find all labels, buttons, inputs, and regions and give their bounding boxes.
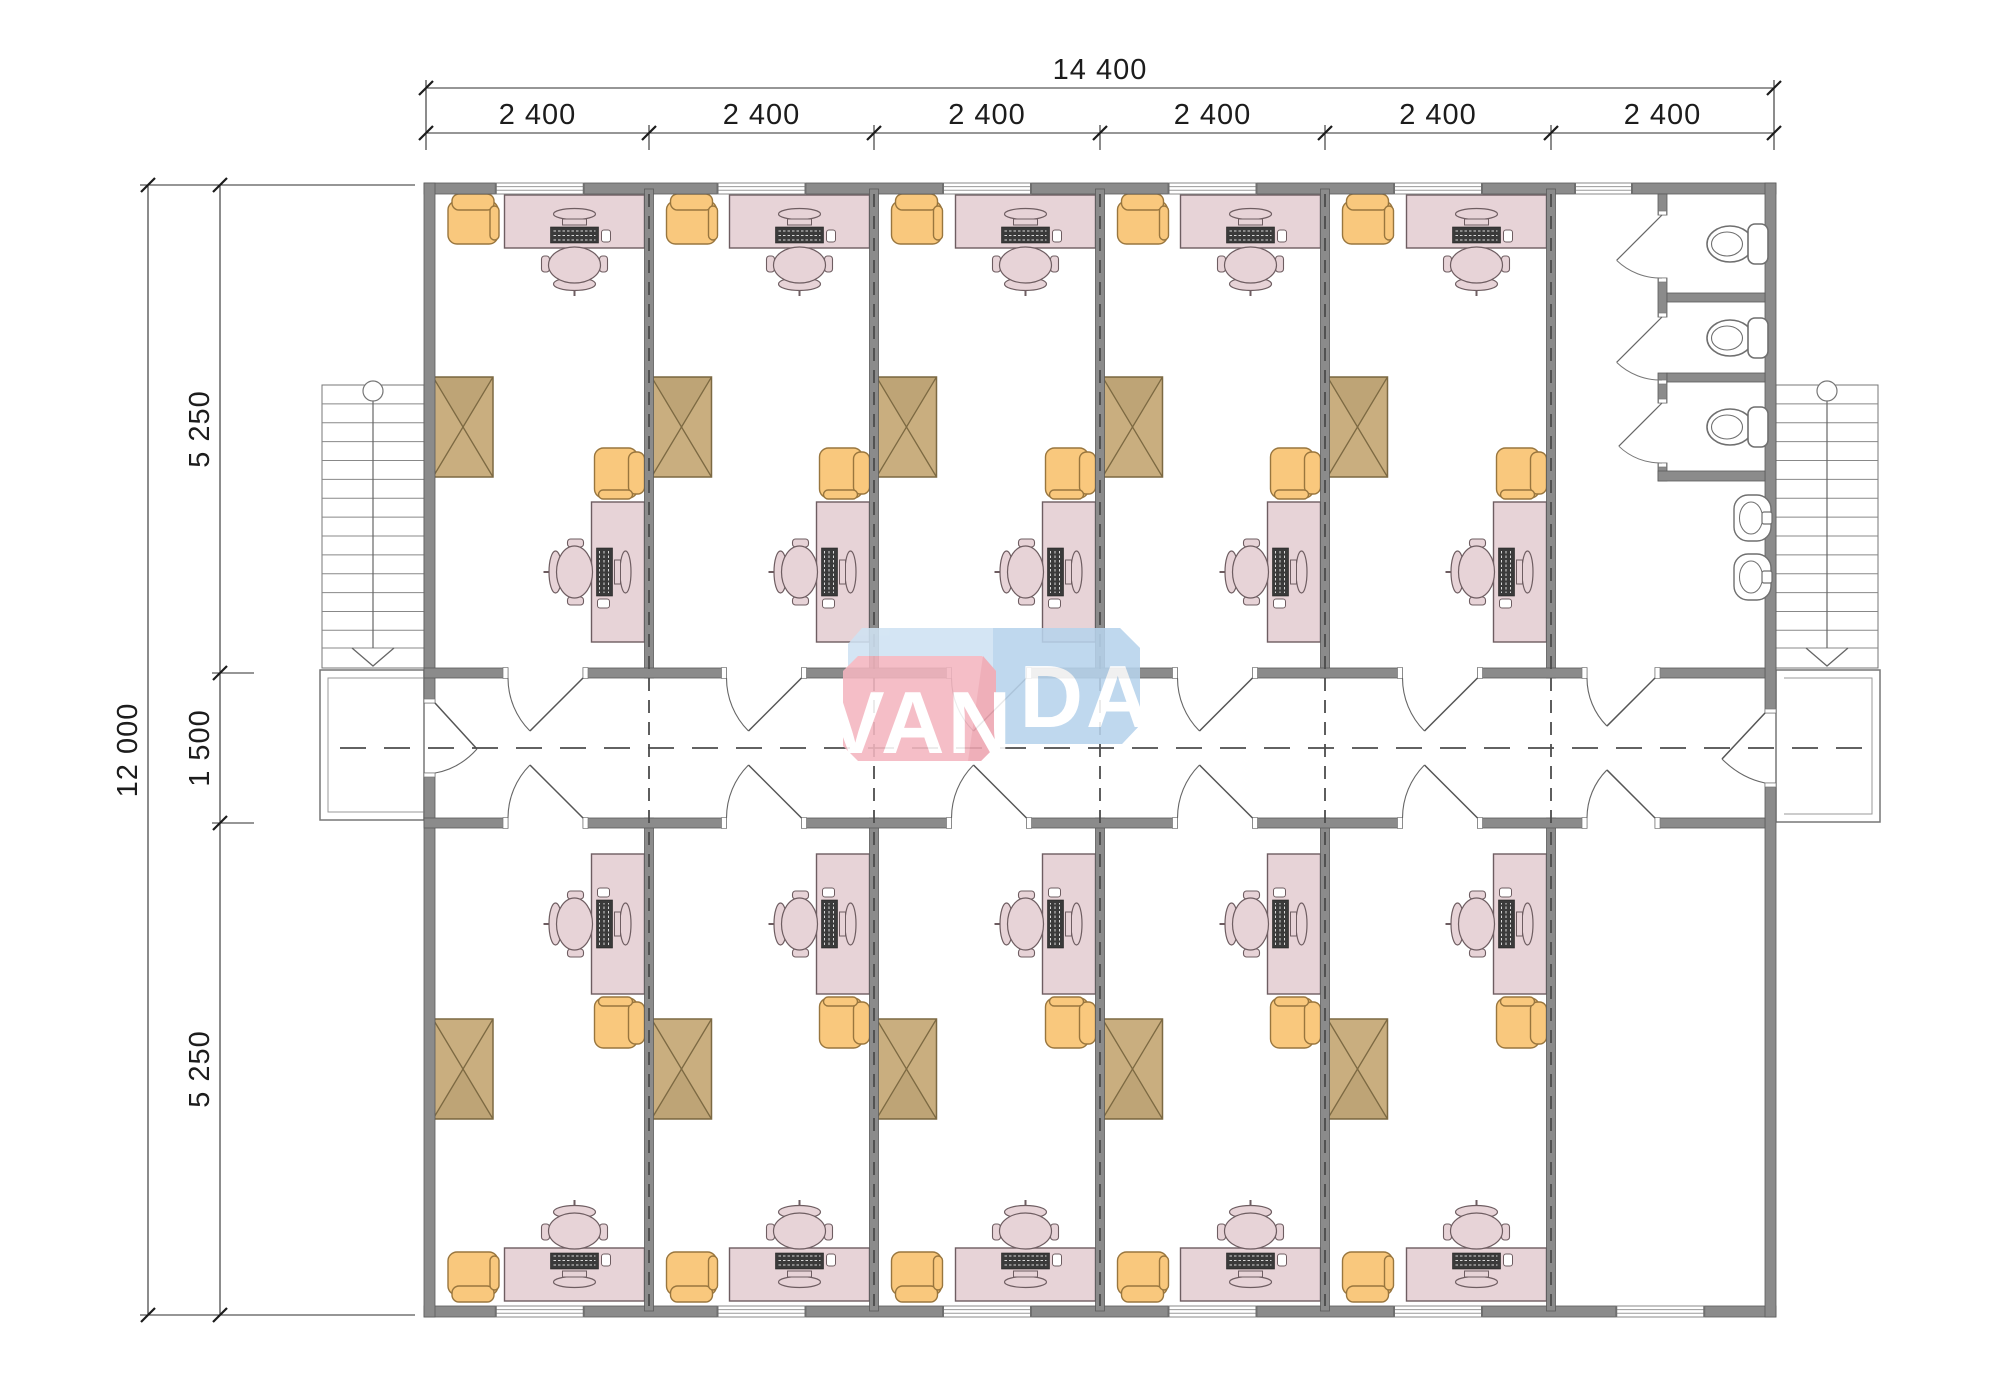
office-room-2-upper bbox=[652, 194, 870, 642]
mouse bbox=[1500, 888, 1512, 897]
office-chair bbox=[769, 539, 818, 605]
workstation bbox=[730, 1200, 870, 1301]
office-room-5-upper bbox=[1328, 194, 1547, 642]
cabinet bbox=[433, 377, 493, 477]
keyboard bbox=[551, 227, 599, 243]
workstation bbox=[1446, 854, 1547, 994]
office-chair bbox=[1444, 1200, 1510, 1249]
monitor bbox=[1071, 551, 1082, 593]
keyboard bbox=[1273, 548, 1289, 596]
window bbox=[943, 183, 1031, 194]
keyboard bbox=[776, 227, 824, 243]
wall-segment bbox=[424, 773, 435, 1317]
dim-left-total: 12 000 bbox=[112, 703, 144, 798]
armchair bbox=[1046, 448, 1096, 499]
door-upper-room bbox=[1173, 668, 1258, 732]
stair-start-marker bbox=[363, 381, 383, 401]
armchair bbox=[1497, 448, 1547, 499]
dim-top-segment-3: 2 400 bbox=[948, 99, 1026, 131]
toilet bbox=[1707, 224, 1768, 264]
monitor bbox=[1071, 903, 1082, 945]
armchair bbox=[892, 1252, 943, 1302]
office-room-4-lower bbox=[1103, 854, 1321, 1302]
toilet bbox=[1707, 318, 1768, 358]
mouse bbox=[1274, 599, 1286, 608]
stair-start-marker bbox=[1817, 381, 1837, 401]
mouse bbox=[1504, 230, 1513, 242]
mouse bbox=[602, 230, 611, 242]
mouse bbox=[602, 1254, 611, 1266]
office-chair bbox=[767, 1200, 833, 1249]
keyboard bbox=[551, 1253, 599, 1269]
keyboard bbox=[597, 548, 613, 596]
keyboard bbox=[1499, 548, 1515, 596]
monitor bbox=[845, 903, 856, 945]
monitor bbox=[1522, 903, 1533, 945]
cabinet bbox=[1328, 1019, 1388, 1119]
window bbox=[718, 1306, 806, 1317]
mouse bbox=[598, 599, 610, 608]
armchair bbox=[448, 194, 499, 244]
mouse bbox=[1053, 1254, 1062, 1266]
keyboard bbox=[1002, 227, 1050, 243]
dim-top-segment-2: 2 400 bbox=[723, 99, 801, 131]
wall-segment bbox=[802, 818, 952, 828]
monitor bbox=[1005, 209, 1047, 220]
armchair bbox=[1271, 448, 1321, 499]
window bbox=[1169, 183, 1257, 194]
office-room-2-lower bbox=[652, 854, 870, 1302]
wall-segment bbox=[1667, 293, 1765, 302]
dim-top-segment-1: 2 400 bbox=[499, 99, 577, 131]
door-upper-room bbox=[503, 668, 588, 732]
office-chair bbox=[542, 247, 608, 296]
monitor bbox=[1005, 1277, 1047, 1288]
keyboard bbox=[1048, 548, 1064, 596]
sink bbox=[1734, 495, 1772, 541]
door-lower-room bbox=[947, 765, 1032, 829]
workstation bbox=[956, 195, 1096, 296]
workstation bbox=[1407, 1200, 1547, 1301]
wall-segment bbox=[1655, 668, 1765, 678]
armchair bbox=[595, 997, 645, 1048]
mouse bbox=[1500, 599, 1512, 608]
mouse bbox=[1049, 888, 1061, 897]
cabinet bbox=[433, 1019, 493, 1119]
logo-text-van: VAN bbox=[826, 673, 1014, 772]
office-chair bbox=[1446, 891, 1495, 957]
armchair bbox=[892, 194, 943, 244]
monitor bbox=[1522, 551, 1533, 593]
armchair bbox=[1118, 194, 1169, 244]
keyboard bbox=[1002, 1253, 1050, 1269]
wall-segment bbox=[1478, 818, 1588, 828]
monitor bbox=[1230, 209, 1272, 220]
office-chair bbox=[1220, 891, 1269, 957]
monitor bbox=[779, 209, 821, 220]
window bbox=[1394, 1306, 1482, 1317]
door-lower-room bbox=[1398, 765, 1483, 829]
cabinet bbox=[652, 1019, 712, 1119]
monitor bbox=[1230, 1277, 1272, 1288]
armchair bbox=[667, 194, 718, 244]
wall-segment bbox=[1478, 668, 1588, 678]
workstation bbox=[505, 1200, 645, 1301]
keyboard bbox=[1048, 900, 1064, 948]
stall-door bbox=[1617, 211, 1667, 282]
window bbox=[943, 1306, 1031, 1317]
mouse bbox=[823, 599, 835, 608]
keyboard bbox=[776, 1253, 824, 1269]
office-room-1-lower bbox=[433, 854, 645, 1302]
office-room-5-lower bbox=[1328, 854, 1547, 1302]
cabinet bbox=[1328, 377, 1388, 477]
workstation bbox=[544, 854, 645, 994]
armchair bbox=[1046, 997, 1096, 1048]
wall-segment bbox=[583, 668, 727, 678]
wall-segment bbox=[1253, 818, 1403, 828]
keyboard bbox=[1273, 900, 1289, 948]
office-chair bbox=[767, 247, 833, 296]
keyboard bbox=[822, 900, 838, 948]
office-chair bbox=[769, 891, 818, 957]
mouse bbox=[823, 888, 835, 897]
armchair bbox=[1497, 997, 1547, 1048]
mouse bbox=[1053, 230, 1062, 242]
mouse bbox=[1504, 1254, 1513, 1266]
office-chair bbox=[544, 891, 593, 957]
cabinet bbox=[877, 377, 937, 477]
floor-plan-canvas: VAN DA14 4002 4002 4002 4002 4002 4002 4… bbox=[0, 0, 2000, 1380]
monitor bbox=[554, 209, 596, 220]
wall-segment bbox=[1027, 818, 1178, 828]
floor-plan-drawing: VAN DA14 4002 4002 4002 4002 4002 4002 4… bbox=[0, 0, 2000, 1380]
armchair bbox=[820, 448, 870, 499]
wall-segment bbox=[1658, 278, 1667, 317]
office-room-3-lower bbox=[877, 854, 1096, 1302]
toilet bbox=[1707, 407, 1768, 447]
office-room-3-upper bbox=[877, 194, 1096, 642]
window bbox=[718, 183, 806, 194]
wall-segment bbox=[1765, 783, 1776, 1317]
workstation bbox=[544, 502, 645, 642]
workstation bbox=[1181, 1200, 1321, 1301]
workstation bbox=[1220, 502, 1321, 642]
staircase bbox=[322, 381, 424, 668]
keyboard bbox=[822, 548, 838, 596]
wall-segment bbox=[583, 818, 727, 828]
monitor bbox=[620, 903, 631, 945]
vanda-logo: VAN DA bbox=[826, 628, 1153, 772]
armchair bbox=[820, 997, 870, 1048]
keyboard bbox=[1227, 1253, 1275, 1269]
monitor bbox=[1296, 551, 1307, 593]
wall-segment bbox=[424, 668, 508, 678]
door-lower-room bbox=[1173, 765, 1258, 829]
office-room-4-upper bbox=[1103, 194, 1321, 642]
workstation bbox=[1446, 502, 1547, 642]
armchair bbox=[667, 1252, 718, 1302]
cabinet bbox=[1103, 1019, 1163, 1119]
office-chair bbox=[995, 539, 1044, 605]
workstation bbox=[956, 1200, 1096, 1301]
workstation bbox=[1407, 195, 1547, 296]
mouse bbox=[1278, 230, 1287, 242]
armchair bbox=[448, 1252, 499, 1302]
office-chair bbox=[993, 247, 1059, 296]
workstation bbox=[505, 195, 645, 296]
mouse bbox=[1278, 1254, 1287, 1266]
office-chair bbox=[542, 1200, 608, 1249]
wall-segment bbox=[1253, 668, 1403, 678]
monitor bbox=[1456, 1277, 1498, 1288]
wall-segment bbox=[1655, 818, 1765, 828]
workstation bbox=[1220, 854, 1321, 994]
office-chair bbox=[995, 891, 1044, 957]
office-room-1-upper bbox=[433, 194, 645, 642]
mouse bbox=[598, 888, 610, 897]
workstation bbox=[730, 195, 870, 296]
wall-segment bbox=[1658, 471, 1765, 481]
dim-top-segment-4: 2 400 bbox=[1174, 99, 1252, 131]
door-lower-room bbox=[1582, 770, 1660, 829]
mouse bbox=[1274, 888, 1286, 897]
cabinet bbox=[1103, 377, 1163, 477]
door-upper-room bbox=[1398, 668, 1483, 732]
cabinet bbox=[652, 377, 712, 477]
wall-segment bbox=[424, 818, 508, 828]
sink bbox=[1734, 554, 1772, 600]
cabinet bbox=[877, 1019, 937, 1119]
door-lower-room bbox=[722, 765, 807, 829]
workstation bbox=[1181, 195, 1321, 296]
entrance-landing bbox=[1776, 670, 1880, 822]
office-chair bbox=[1218, 247, 1284, 296]
keyboard bbox=[1227, 227, 1275, 243]
armchair bbox=[1343, 1252, 1394, 1302]
office-chair bbox=[1446, 539, 1495, 605]
office-chair bbox=[1220, 539, 1269, 605]
window bbox=[496, 1306, 584, 1317]
mouse bbox=[1049, 599, 1061, 608]
monitor bbox=[620, 551, 631, 593]
door-upper-room bbox=[722, 668, 807, 732]
office-chair bbox=[1444, 247, 1510, 296]
workstation bbox=[769, 502, 870, 642]
window bbox=[1394, 183, 1482, 194]
logo-text-da: DA bbox=[1019, 647, 1152, 746]
dim-left-segment-2: 1 500 bbox=[184, 709, 216, 787]
door-upper-room bbox=[1582, 668, 1660, 727]
window bbox=[1616, 1306, 1704, 1317]
dim-top-total: 14 400 bbox=[1053, 54, 1148, 86]
entrance-door-west bbox=[424, 699, 477, 777]
monitor bbox=[845, 551, 856, 593]
mouse bbox=[827, 230, 836, 242]
stall-door bbox=[1619, 399, 1667, 467]
mouse bbox=[827, 1254, 836, 1266]
window bbox=[496, 183, 584, 194]
staircase bbox=[1776, 381, 1878, 668]
keyboard bbox=[1453, 227, 1501, 243]
monitor bbox=[554, 1277, 596, 1288]
monitor bbox=[779, 1277, 821, 1288]
keyboard bbox=[597, 900, 613, 948]
workstation bbox=[995, 502, 1096, 642]
window bbox=[1575, 183, 1632, 194]
office-chair bbox=[1218, 1200, 1284, 1249]
armchair bbox=[595, 448, 645, 499]
wall-segment bbox=[1765, 183, 1776, 713]
wall-segment bbox=[1658, 373, 1667, 403]
armchair bbox=[1118, 1252, 1169, 1302]
armchair bbox=[1343, 194, 1394, 244]
workstation bbox=[995, 854, 1096, 994]
entrance-landing bbox=[320, 670, 424, 820]
dim-top-segment-6: 2 400 bbox=[1624, 99, 1702, 131]
workstation bbox=[769, 854, 870, 994]
office-chair bbox=[544, 539, 593, 605]
office-chair bbox=[993, 1200, 1059, 1249]
keyboard bbox=[1453, 1253, 1501, 1269]
dim-left-segment-3: 5 250 bbox=[184, 1030, 216, 1108]
monitor bbox=[1456, 209, 1498, 220]
wall-segment bbox=[1667, 373, 1765, 382]
armchair bbox=[1271, 997, 1321, 1048]
monitor bbox=[1296, 903, 1307, 945]
wall-segment bbox=[424, 183, 435, 703]
dim-left-segment-1: 5 250 bbox=[184, 390, 216, 468]
door-lower-room bbox=[503, 765, 588, 829]
keyboard bbox=[1499, 900, 1515, 948]
window bbox=[1169, 1306, 1257, 1317]
dim-top-segment-5: 2 400 bbox=[1399, 99, 1477, 131]
